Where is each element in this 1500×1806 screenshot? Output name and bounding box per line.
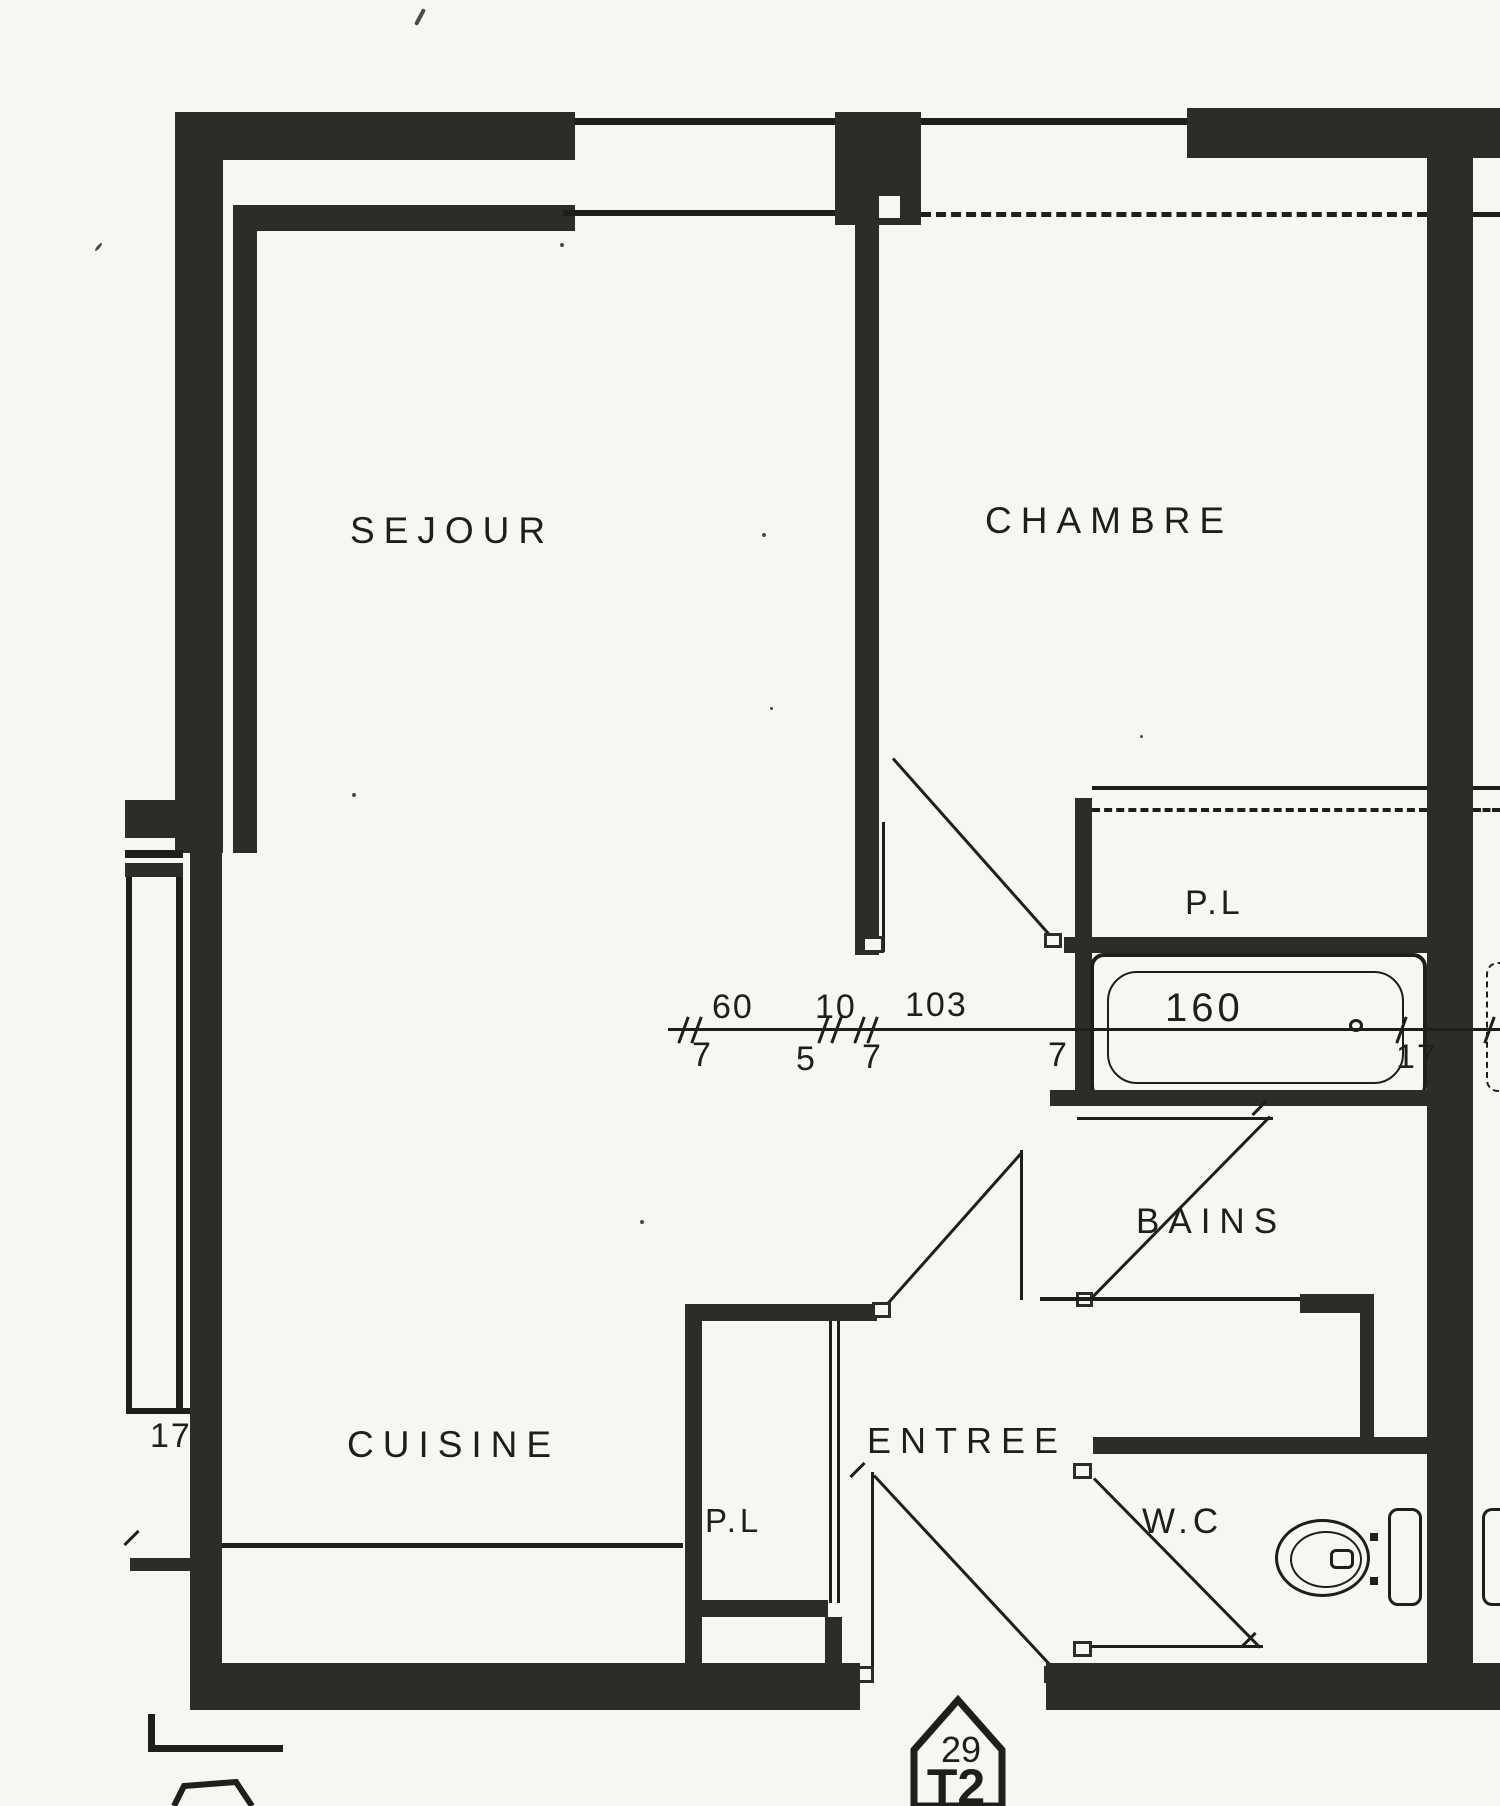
room-label-bains: BAINS bbox=[1136, 1202, 1286, 1242]
balcony-rail-left bbox=[126, 877, 132, 1409]
facade-stub-bar bbox=[130, 1558, 190, 1571]
entry-door-leaf bbox=[871, 1472, 874, 1668]
wall-top-left bbox=[175, 112, 575, 160]
wall-entree-pl-north bbox=[685, 1304, 877, 1321]
balcony-rail-end-tick bbox=[126, 1408, 190, 1414]
window-2-sill-dashed bbox=[921, 212, 1427, 217]
window-1-sill bbox=[563, 210, 847, 216]
scan-speck bbox=[762, 533, 766, 537]
floor-plan: P.L 160 60 10 103 7 5 7 7 17 17 BAINS W.… bbox=[0, 0, 1500, 1806]
wall-entree-pl-east bbox=[825, 1617, 842, 1666]
dim-tub-length: 160 bbox=[1165, 986, 1244, 1031]
wall-pl-south bbox=[1064, 937, 1427, 953]
wc-door-hinge-bottom bbox=[1073, 1641, 1092, 1657]
room-label-sejour: SEJOUR bbox=[350, 510, 554, 552]
corner-foot-hook bbox=[148, 1714, 155, 1752]
wall-bottom-right bbox=[1046, 1663, 1500, 1710]
room-label-cuisine: CUISINE bbox=[347, 1424, 560, 1466]
scan-speck bbox=[414, 8, 426, 26]
toilet-bolt bbox=[1370, 1533, 1378, 1541]
room-label-placard-entree: P.L bbox=[705, 1502, 762, 1540]
unit-badge: 29 T2 bbox=[898, 1694, 1014, 1806]
corridor-door-leaf bbox=[1020, 1150, 1023, 1300]
dim-10: 10 bbox=[815, 988, 857, 1027]
dimension-line bbox=[668, 1028, 1500, 1031]
wall-inner-left bbox=[233, 205, 257, 853]
chambre-door-swing bbox=[892, 758, 1054, 940]
toilet-tank bbox=[1388, 1508, 1422, 1606]
chambre-south-line bbox=[1092, 786, 1427, 790]
corridor-door-hinge bbox=[872, 1302, 891, 1318]
dim-17-left: 17 bbox=[150, 1417, 192, 1456]
entree-pl-door-line bbox=[829, 1321, 832, 1603]
wall-entree-pl-west bbox=[685, 1304, 702, 1666]
room-label-wc: W.C bbox=[1142, 1502, 1223, 1542]
scan-speck bbox=[352, 793, 356, 797]
neighbor-south-line bbox=[1473, 786, 1500, 790]
chambre-door-leaf bbox=[882, 822, 885, 952]
corridor-stub-wall bbox=[1360, 1297, 1374, 1437]
scan-speck bbox=[94, 242, 103, 252]
room-label-placard-bains: P.L bbox=[1185, 884, 1244, 923]
wall-wc-north bbox=[1093, 1437, 1473, 1454]
dim-7b: 7 bbox=[862, 1038, 883, 1077]
toilet-flush-button bbox=[1330, 1549, 1354, 1569]
pl-front-dashed bbox=[1092, 808, 1427, 812]
dim-60: 60 bbox=[712, 988, 754, 1027]
balcony-step-stub bbox=[125, 800, 178, 838]
dim-7a: 7 bbox=[692, 1036, 713, 1075]
chambre-door-strike-hinge bbox=[1044, 933, 1062, 948]
bains-door-leaf bbox=[1077, 1117, 1273, 1120]
window-1-outer-line bbox=[575, 118, 837, 125]
unit-type: T2 bbox=[927, 1759, 985, 1806]
room-label-chambre: CHAMBRE bbox=[985, 500, 1233, 542]
neighbor-fixture bbox=[1482, 1508, 1500, 1606]
room-label-entree: ENTREE bbox=[867, 1420, 1067, 1462]
dim-5: 5 bbox=[796, 1040, 817, 1079]
scan-speck bbox=[770, 707, 773, 710]
facade-tick bbox=[123, 1530, 139, 1546]
wall-left-outer bbox=[175, 112, 223, 853]
dim-103: 103 bbox=[905, 986, 968, 1025]
neighbor-sill-line bbox=[1473, 212, 1500, 217]
balcony-slot-line bbox=[125, 850, 183, 858]
entry-door-swing bbox=[873, 1474, 1058, 1672]
wc-door-hinge-top bbox=[1073, 1463, 1092, 1479]
corner-badge-cut bbox=[160, 1778, 270, 1806]
wall-left-lower bbox=[190, 853, 222, 1665]
wall-inner-top bbox=[233, 205, 575, 231]
wc-door-chord bbox=[1075, 1645, 1263, 1648]
entree-pl-shelf bbox=[702, 1600, 828, 1617]
balcony-rail-right bbox=[176, 877, 183, 1409]
wall-bottom-left bbox=[190, 1663, 860, 1710]
chambre-door-hinge bbox=[862, 936, 884, 953]
kitchen-counter-line bbox=[222, 1543, 683, 1548]
entree-pl-door-line bbox=[837, 1321, 840, 1603]
window-2-outer-line bbox=[921, 118, 1187, 125]
balcony-slot-bar bbox=[125, 863, 183, 877]
scan-speck bbox=[1140, 735, 1143, 738]
wall-right-party bbox=[1427, 108, 1473, 1710]
neighbor-front-dashed bbox=[1473, 808, 1500, 812]
scan-speck bbox=[640, 1220, 644, 1224]
wall-sejour-chambre bbox=[855, 158, 879, 955]
corridor-door-swing bbox=[887, 1153, 1022, 1305]
entry-door-tick bbox=[849, 1462, 865, 1478]
neighbor-tub-sliver bbox=[1486, 962, 1500, 1092]
toilet-bolt bbox=[1370, 1577, 1378, 1585]
dim-17-tub: 17 bbox=[1396, 1038, 1438, 1077]
corner-foot-line bbox=[148, 1745, 283, 1752]
dim-7c: 7 bbox=[1048, 1036, 1069, 1075]
wall-bains-north bbox=[1050, 1090, 1427, 1106]
scan-speck bbox=[560, 243, 564, 247]
